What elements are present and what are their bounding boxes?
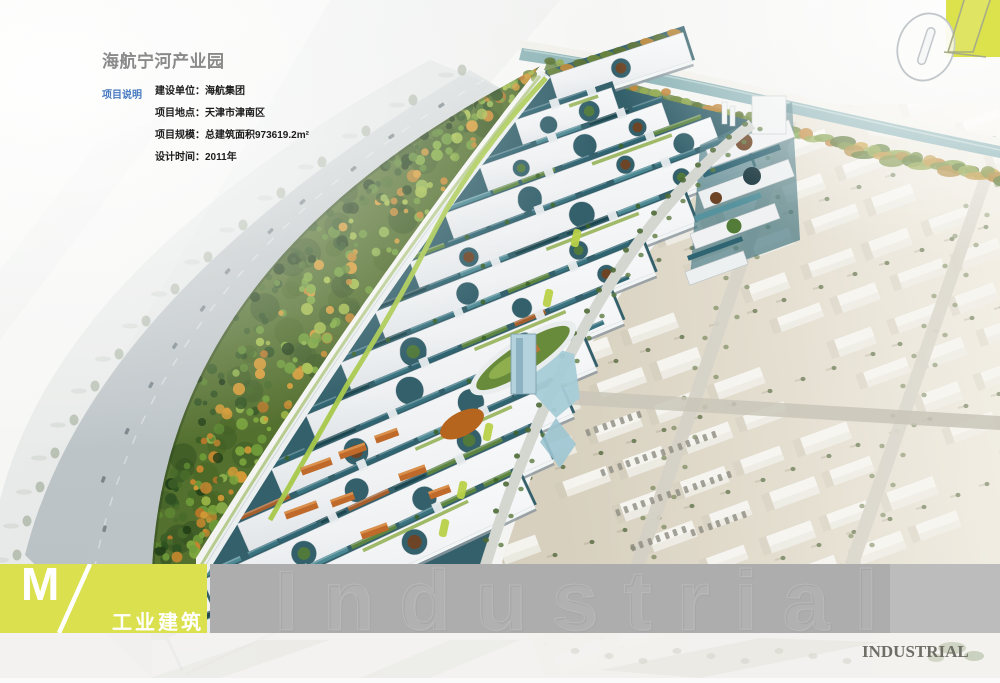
svg-text:Industrial: Industrial: [275, 564, 903, 633]
